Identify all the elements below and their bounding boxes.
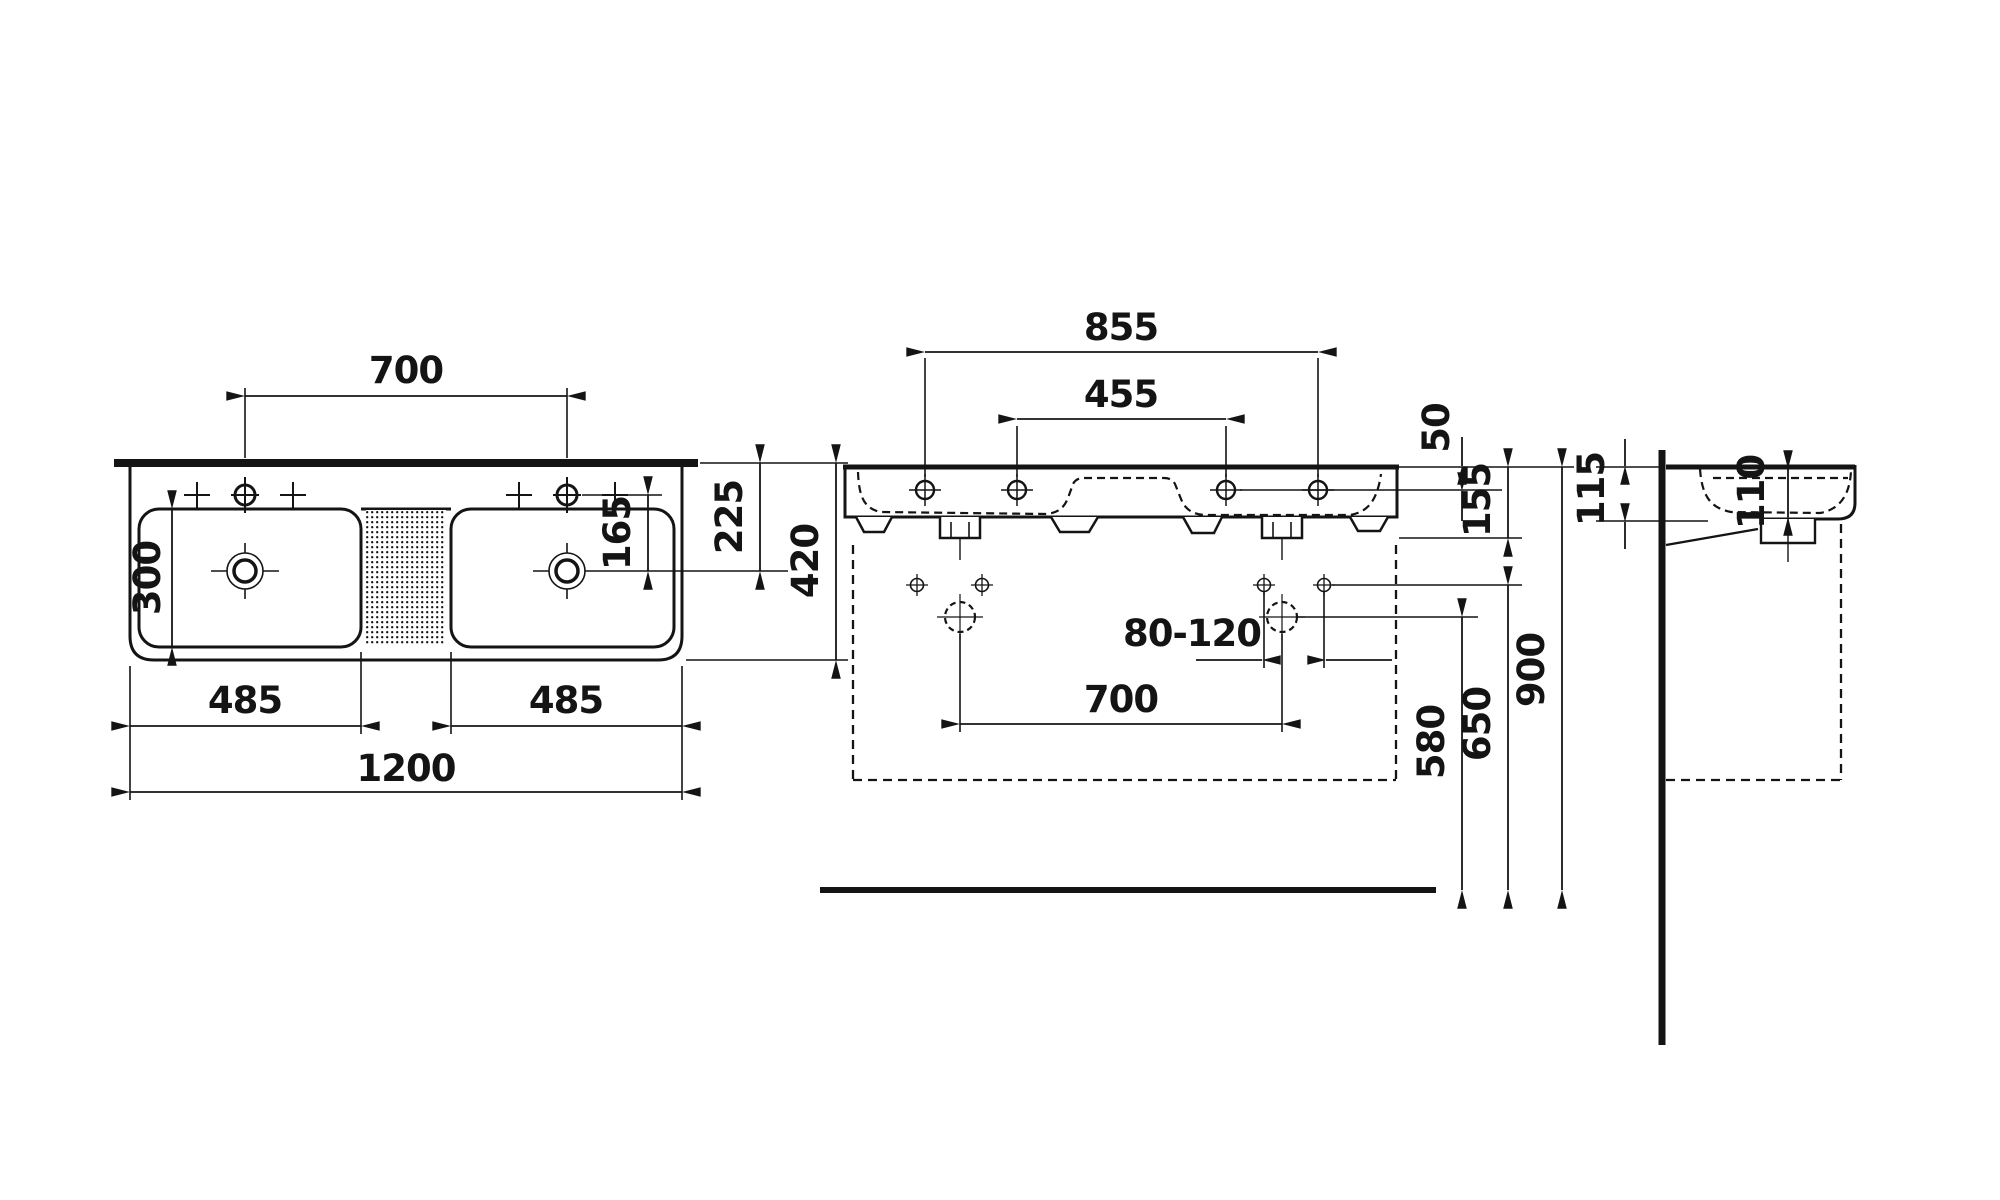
- dim-label-580: 580: [1410, 705, 1453, 779]
- basin-underside-slant: [1666, 529, 1758, 545]
- dim-label-485-right: 485: [529, 679, 603, 722]
- dim-label-80-120: 80-120: [1123, 612, 1261, 655]
- dim-label-485-left: 485: [208, 679, 282, 722]
- dim-label-155: 155: [1456, 463, 1499, 537]
- bowl-profile-dashed-side: [1700, 469, 1851, 513]
- dim-label-650: 650: [1456, 687, 1499, 761]
- dim-label-50: 50: [1415, 403, 1458, 453]
- dim-label-225: 225: [708, 480, 751, 554]
- shelf-hatch: [366, 510, 446, 646]
- drain-outlet-icon: [937, 594, 983, 640]
- dim-label-700-top: 700: [369, 349, 443, 392]
- basin-outline-side: [1761, 465, 1855, 519]
- wall-edge-line: [114, 459, 698, 467]
- installation-space-dashed: [853, 545, 1396, 780]
- basin-feet: [856, 517, 1388, 560]
- drain-outlet-icon: [1259, 594, 1305, 640]
- drawing-page: 700 300 165 225 420 485 485 1200: [0, 0, 2000, 1200]
- dim-label-420: 420: [784, 524, 827, 598]
- dim-label-165: 165: [596, 496, 639, 570]
- technical-drawing: 700 300 165 225 420 485 485 1200: [0, 0, 2000, 1200]
- dim-label-115: 115: [1570, 452, 1613, 526]
- dim-label-855: 855: [1084, 306, 1158, 349]
- dim-700-top: [245, 388, 567, 458]
- side-view: 115 110: [1570, 439, 1855, 1045]
- installation-space-dashed-side: [1666, 524, 1841, 780]
- dim-label-300: 300: [126, 541, 169, 615]
- dim-label-1200: 1200: [357, 747, 456, 790]
- dim-label-455: 455: [1084, 373, 1158, 416]
- dim-label-700-front: 700: [1084, 678, 1158, 721]
- mounting-hole-icon: [906, 574, 1335, 596]
- dim-label-900: 900: [1510, 633, 1553, 707]
- front-view: 855 455 50 155 80-120 700 580 650 900: [820, 306, 1574, 890]
- top-view: 700 300 165 225 420 485 485 1200: [114, 349, 848, 800]
- dim-label-110: 110: [1730, 455, 1773, 529]
